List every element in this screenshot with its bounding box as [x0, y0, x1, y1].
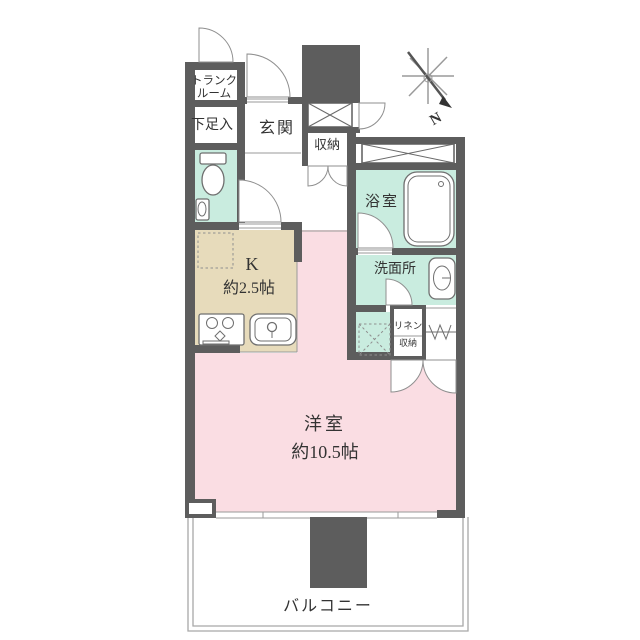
floor-plan-page: N トランク ルーム 下足入 玄関 収納 浴室 洗面所 リネン 収納 K 約2.… — [0, 0, 640, 640]
corner-pillar-inner — [189, 503, 212, 514]
linen-label-line1: リネン — [394, 321, 423, 332]
bath-washroom-wall-right — [392, 248, 456, 255]
hall-door — [239, 180, 281, 222]
bathtub-icon — [404, 172, 454, 246]
sanitary-left-wall — [347, 127, 356, 360]
hall-closet-label: 収納 — [314, 137, 340, 152]
trunk-room-door — [199, 28, 233, 62]
right-wall — [456, 137, 465, 518]
linen-label-line2: 収納 — [399, 337, 417, 348]
bath-washroom-wall-left — [352, 248, 358, 255]
kitchen-right-wall — [294, 222, 302, 262]
entrance-top-wall-left — [237, 97, 247, 104]
entrance-door — [247, 54, 290, 97]
laundry-space-floor — [356, 312, 391, 352]
entrance-top-wall-right — [288, 97, 302, 104]
hall-closet-door-left — [308, 166, 328, 186]
structural-column — [302, 45, 360, 97]
compass-north-label: N — [427, 110, 445, 129]
trunk-shoe-divider-wall — [185, 100, 245, 107]
trunk-room-label-line2: ルーム — [197, 87, 231, 100]
hall-closet-door-right — [328, 166, 347, 186]
washroom-label: 洗面所 — [374, 261, 416, 277]
floor-plan: N トランク ルーム 下足入 玄関 収納 浴室 洗面所 リネン 収納 K 約2.… — [0, 0, 640, 640]
balcony-column — [310, 517, 367, 588]
kitchen-sink-icon — [250, 314, 296, 345]
compass-arrowhead — [439, 96, 452, 108]
compass-icon: N — [402, 48, 454, 129]
window-right-stub-wall — [437, 510, 456, 518]
trunk-top-wall — [185, 62, 245, 70]
western-room-size-label: 約10.5帖 — [291, 442, 359, 462]
bathroom-top-wall — [352, 163, 456, 170]
sanitary-top-wall — [352, 137, 465, 144]
hanger-closet — [426, 325, 456, 339]
trunk-right-wall — [237, 62, 245, 150]
pipe-space-door — [359, 103, 385, 129]
trunk-room-label-line1: トランク — [191, 74, 237, 87]
washroom-bottom-wall — [352, 305, 386, 312]
entrance-label: 玄関 — [259, 119, 295, 137]
western-room-label: 洋室 — [304, 414, 346, 434]
bathroom-label: 浴室 — [365, 193, 399, 210]
kitchen-bottom-wall — [185, 345, 240, 353]
kitchen-top-wall-left — [185, 222, 239, 230]
stove-icon — [199, 314, 244, 345]
balcony-label: バルコニー — [283, 598, 373, 615]
washbasin-icon — [429, 258, 455, 299]
kitchen-size-label: 約2.5帖 — [223, 279, 275, 297]
kitchen-label: K — [246, 254, 259, 274]
shoe-bottom-wall — [185, 143, 245, 150]
pipe-space-top-wall — [302, 97, 360, 103]
shoe-storage-label: 下足入 — [191, 118, 233, 133]
laundry-bottom-wall — [352, 352, 391, 360]
